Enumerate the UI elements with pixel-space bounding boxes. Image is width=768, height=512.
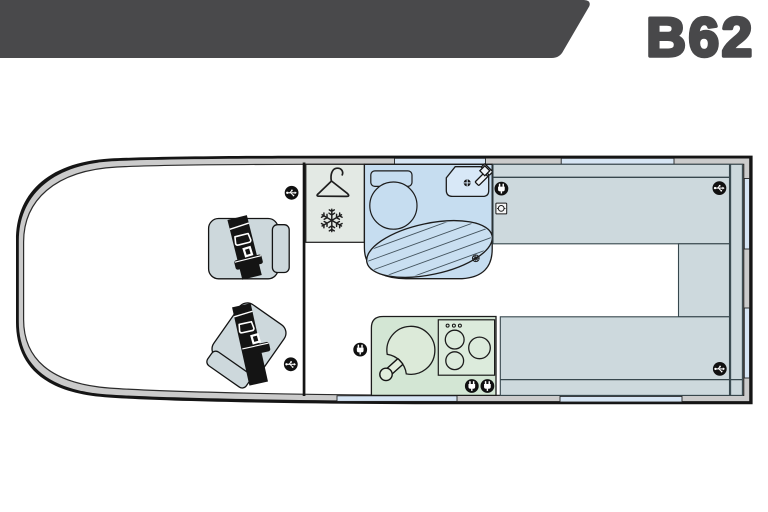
svg-text:B62: B62 (646, 6, 754, 68)
